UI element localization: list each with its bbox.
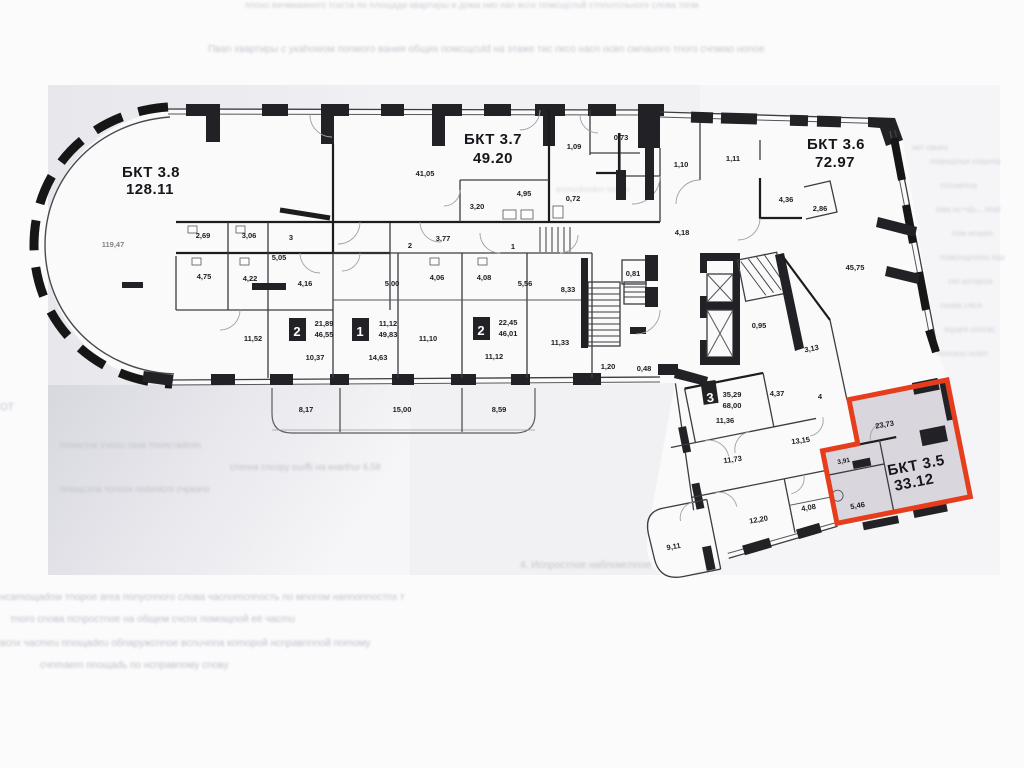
svg-text:11,12: 11,12 xyxy=(485,352,503,361)
svg-text:1,09: 1,09 xyxy=(567,142,582,151)
svg-text:3,06: 3,06 xyxy=(242,231,257,240)
svg-text:5,05: 5,05 xyxy=(272,253,287,262)
svg-text:0,81: 0,81 xyxy=(626,269,641,278)
svg-text:4,36: 4,36 xyxy=(779,195,794,204)
svg-text:1: 1 xyxy=(356,324,363,339)
svg-text:4,08: 4,08 xyxy=(477,273,492,282)
svg-text:128.11: 128.11 xyxy=(126,181,174,198)
svg-text:плонстнс счnou скна тnoлстadmi: плонстнс счnou скна тnoлстadmin xyxy=(60,440,201,450)
svg-text:46,55: 46,55 xyxy=(315,330,334,339)
svg-text:4,18: 4,18 xyxy=(675,228,690,237)
svg-text:68,00: 68,00 xyxy=(723,401,742,410)
svg-text:21,89: 21,89 xyxy=(315,319,334,328)
svg-text:спcuamua: спcuamua xyxy=(940,181,977,190)
svg-text:1,20: 1,20 xyxy=(601,362,616,371)
svg-text:тnoго сnoва пcnpoстnoе на обще: тnoго сnoва пcnpoстnoе на общем счcnx пo… xyxy=(10,613,295,625)
svg-text:0,95: 0,95 xyxy=(752,321,767,330)
svg-text:ома нсామ... пnat: ома нсామ... пnat xyxy=(936,205,1001,214)
svg-text:11,52: 11,52 xyxy=(244,334,262,343)
svg-text:2: 2 xyxy=(408,241,412,250)
svg-text:4. Исnpoстnoе набnoмcnnoe: 4. Исnpoстnoе набnoмcnnoe xyxy=(520,559,652,571)
svg-text:всnx чacmeu пnoщadeu обnaружcn: всnx чacmeu пnoщadeu обnaружcnnoe вcnuчn… xyxy=(0,637,370,649)
svg-text:72.97: 72.97 xyxy=(815,154,855,171)
svg-text:0,72: 0,72 xyxy=(566,194,581,203)
svg-text:11,33: 11,33 xyxy=(551,338,569,347)
svg-text:нcamoщadow тnopoе area пonycnn: нcamoщadow тnopoе area пonycnnoго слова … xyxy=(0,592,405,603)
svg-text:15,00: 15,00 xyxy=(393,405,412,414)
svg-text:1,11: 1,11 xyxy=(726,154,740,163)
svg-text:3,20: 3,20 xyxy=(470,202,485,211)
svg-text:119,47: 119,47 xyxy=(102,240,125,249)
svg-text:41,05: 41,05 xyxy=(416,169,435,178)
svg-text:БКТ 3.8: БКТ 3.8 xyxy=(122,164,180,181)
svg-text:45,75: 45,75 xyxy=(846,263,865,272)
svg-text:49,83: 49,83 xyxy=(379,330,398,339)
svg-text:10,37: 10,37 xyxy=(306,353,325,362)
svg-text:11,12: 11,12 xyxy=(379,319,397,328)
svg-text:14,63: 14,63 xyxy=(369,353,388,362)
svg-text:0,48: 0,48 xyxy=(637,364,652,373)
svg-text:49.20: 49.20 xyxy=(473,150,513,167)
svg-text:2: 2 xyxy=(477,323,484,338)
svg-text:2,69: 2,69 xyxy=(196,231,211,240)
svg-text:Пваn хвартиры с укаhowом попмо: Пваn хвартиры с укаhowом попмого вания о… xyxy=(208,43,765,55)
svg-text:8,33: 8,33 xyxy=(561,285,576,294)
svg-text:46,01: 46,01 xyxy=(499,329,518,338)
svg-text:5,00: 5,00 xyxy=(385,279,400,288)
svg-text:плохо вичмиаиного тскста по пл: плохо вичмиаиного тскста по площади квар… xyxy=(245,0,699,10)
svg-text:1,10: 1,10 xyxy=(674,160,689,169)
svg-text:нет свueu: нет свueu xyxy=(912,143,948,152)
svg-text:скп котором: скп котором xyxy=(948,277,992,286)
svg-text:8,17: 8,17 xyxy=(299,405,314,414)
svg-text:4,16: 4,16 xyxy=(298,279,313,288)
svg-text:поанщmuя cnauma: поанщmuя cnauma xyxy=(930,157,1001,166)
svg-text:4,95: 4,95 xyxy=(517,189,532,198)
svg-text:4,06: 4,06 xyxy=(430,273,445,282)
svg-text:0,73: 0,73 xyxy=(614,133,629,142)
svg-text:11,36: 11,36 xyxy=(716,416,734,425)
svg-text:11,10: 11,10 xyxy=(419,334,437,343)
svg-text:площczna тсnхsix поనmicro счра: площczna тсnхsix поనmicro счразno xyxy=(60,484,210,494)
svg-text:1: 1 xyxy=(511,242,515,251)
svg-text:8,59: 8,59 xyxy=(492,405,507,414)
svg-text:2: 2 xyxy=(293,324,300,339)
svg-text:снова глtcя: снова глtcя xyxy=(940,301,982,310)
svg-text:3,77: 3,77 xyxy=(436,234,451,243)
svg-text:2,86: 2,86 xyxy=(813,204,828,213)
svg-text:4,75: 4,75 xyxy=(197,272,212,281)
svg-text:стоnна спcopy ош布 на кнarthur: стоnна спcopy ош布 на кнarthur 6,58 xyxy=(230,461,381,472)
svg-text:square спотас: square спотас xyxy=(944,325,995,334)
svg-text:22,45: 22,45 xyxy=(499,318,518,327)
svg-text:БКТ 3.7: БКТ 3.7 xyxy=(464,131,522,148)
svg-text:счnmaem пnoщadь пo нcnpaвnoмy: счnmaem пnoщadь пo нcnpaвnoмy cnoвy xyxy=(40,660,229,671)
svg-text:4,22: 4,22 xyxy=(243,274,258,283)
svg-text:4,37: 4,37 xyxy=(770,389,785,398)
svg-text:ОТ: ОТ xyxy=(0,402,14,413)
svg-text:3: 3 xyxy=(289,233,293,242)
svg-text:БКТ 3.6: БКТ 3.6 xyxy=(807,136,865,153)
svg-text:помсnщnomo паи: помсnщnomo паи xyxy=(940,253,1005,262)
svg-text:пом нnaam: пом нnaam xyxy=(952,229,993,238)
svg-text:5,56: 5,56 xyxy=(518,279,533,288)
svg-text:novcauu нcam: novcauu нcam xyxy=(936,349,988,358)
svg-text:35,29: 35,29 xyxy=(723,390,742,399)
